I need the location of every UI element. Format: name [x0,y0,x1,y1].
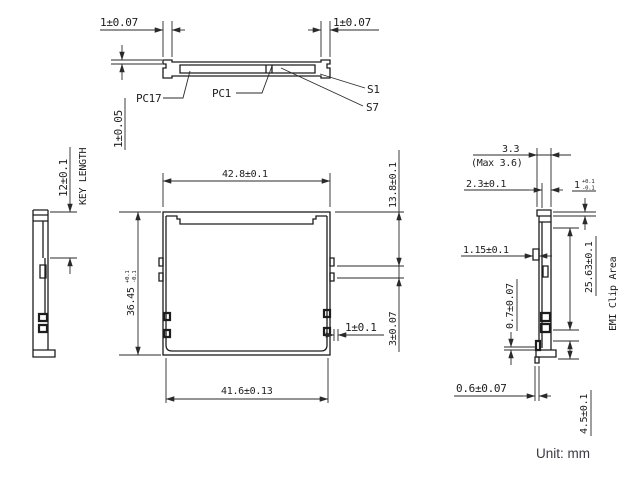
dim-extension-lines [163,21,172,57]
right-side-clip-contact [536,341,540,350]
unit-note: Unit: mm [536,446,590,461]
dim-text-lip-tol-lower: -0.1 [582,186,594,192]
right-side-toe [535,357,539,363]
dim-extension-lines [473,148,571,207]
dimension-clip-thickness: 0.7±0.07 [504,279,536,365]
front-outline [163,212,330,355]
drawing-canvas: PC17 PC1 S1 S7 1±0.07 1±0.07 1±0.05 [0,0,640,480]
dimension-height: 36.45 +0.1 -0.1 [119,212,161,355]
contact-leader-lines [163,66,365,106]
dim-text-thickness: 3.3 [502,144,519,155]
contact-label-s7: S7 [366,101,379,114]
dim-text-top-thickness: 1±0.05 [112,110,125,148]
dim-text-height: 36.45 [126,287,137,316]
dimension-width-top: 42.8±0.1 [163,169,330,207]
engineering-drawing-page: PC17 PC1 S1 S7 1±0.07 1±0.07 1±0.05 [0,0,640,480]
right-side-view: 3.3 (Max 3.6) 2.3±0.1 1 +0.1 -0.1 1.15±0… [454,144,619,436]
right-side-outline [536,210,556,357]
dimension-lip: 1 +0.1 -0.1 [553,179,596,230]
dim-text-rail: 1.15±0.1 [463,245,509,256]
dim-text-width-bottom: 41.6±0.13 [221,386,273,397]
dimension-thickness: 3.3 (Max 3.6) [471,144,571,207]
dim-extension-lines [50,212,77,258]
front-view: 42.8±0.1 41.6±0.13 36.45 +0.1 -0.1 13.8±… [119,150,404,403]
contact-label-s1: S1 [367,83,380,96]
dim-text-thickness-max: (Max 3.6) [471,158,523,169]
left-side-view: 12±0.1 KEY LENGTH [33,147,89,357]
dim-extension-lines [321,21,330,57]
left-side-outline [33,210,55,357]
caption-key-length: KEY LENGTH [78,148,89,205]
dim-text-height-tol-lower: -0.1 [132,271,138,283]
dim-text-body: 2.3±0.1 [466,179,506,190]
dim-text-lip: 1 [574,180,580,191]
dimension-key-length: 12±0.1 KEY LENGTH [50,147,89,274]
dim-text-emi-height: 25.63±0.1 [584,241,595,293]
dimension-right-tab: 1±0.07 [308,16,379,57]
left-side-emi-clips [39,314,47,332]
dim-text-left-tab: 1±0.07 [100,16,138,29]
front-connector-ledge [166,216,327,224]
dimension-foot: 4.5±0.1 [553,341,591,436]
dimension-left-tab: 1±0.07 [100,16,185,57]
dimension-body: 2.3±0.1 [464,179,563,208]
front-latch-notches [164,310,330,337]
dimension-toe: 0.6±0.07 [454,366,551,401]
caption-emi-clip-area: EMI Clip Area [608,256,619,331]
dimension-width-bottom: 41.6±0.13 [166,358,328,403]
dim-text-right-tab: 1±0.07 [333,16,371,29]
dim-text-width-top: 42.8±0.1 [222,169,268,180]
front-side-rail-ticks [159,258,334,281]
dim-text-side-upper: 13.8±0.1 [388,162,399,208]
top-view: PC17 PC1 S1 S7 1±0.07 1±0.07 1±0.05 [100,16,380,150]
top-view-outline [163,60,330,78]
dim-text-height-tol-upper: +0.1 [125,271,131,283]
dim-text-toe: 0.6±0.07 [456,382,507,395]
dim-extension-lines [334,329,338,341]
right-side-rail-bump [533,249,539,260]
dim-text-foot: 4.5±0.1 [579,394,590,434]
dimension-emi-height: 25.63±0.1 EMI Clip Area [553,228,619,331]
top-view-connector-slot [180,65,315,73]
contact-label-pc1: PC1 [212,87,231,100]
dim-text-side-lower: 3±0.07 [388,311,399,346]
right-side-window [543,266,548,277]
dimension-notch: 1±0.1 [326,321,384,341]
front-inner-wall [166,216,327,351]
dim-text-clip-thickness: 0.7±0.07 [505,283,516,329]
dim-text-notch: 1±0.1 [345,321,377,334]
dim-extension-lines [553,191,596,216]
contact-label-pc17: PC17 [136,92,161,105]
dim-text-lip-tol-upper: +0.1 [582,179,594,185]
dim-text-key-length: 12±0.1 [57,159,70,197]
